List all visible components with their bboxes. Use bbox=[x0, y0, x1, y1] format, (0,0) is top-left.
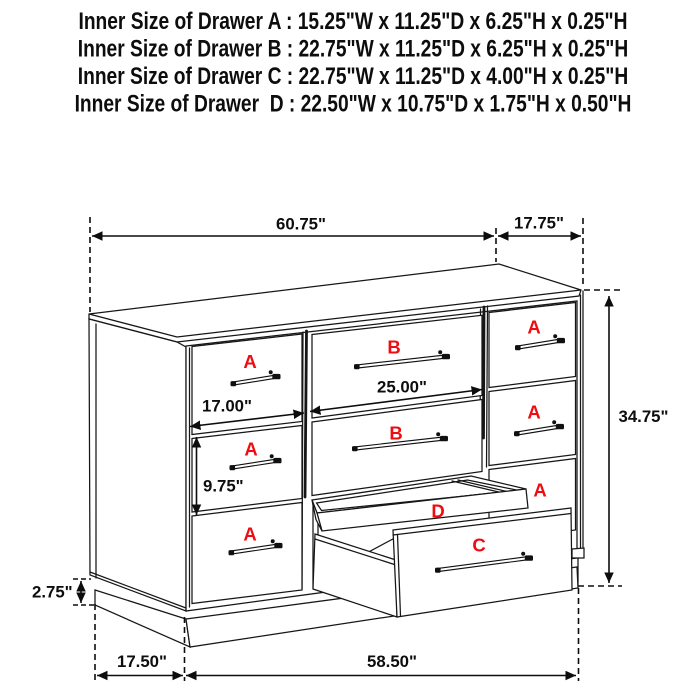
svg-text:A: A bbox=[527, 317, 540, 338]
svg-text:A: A bbox=[527, 402, 540, 423]
svg-text:58.50": 58.50" bbox=[367, 652, 417, 671]
svg-text:34.75": 34.75" bbox=[619, 407, 669, 426]
svg-text:25.00": 25.00" bbox=[377, 378, 427, 397]
svg-text:A: A bbox=[533, 480, 546, 501]
svg-text:17.75": 17.75" bbox=[514, 214, 564, 233]
svg-text:A: A bbox=[243, 524, 256, 545]
svg-text:9.75": 9.75" bbox=[203, 477, 244, 496]
svg-text:B: B bbox=[387, 337, 400, 358]
svg-text:D: D bbox=[431, 501, 444, 522]
svg-text:B: B bbox=[389, 423, 402, 444]
svg-text:2.75": 2.75" bbox=[32, 583, 73, 602]
svg-text:A: A bbox=[244, 439, 257, 460]
svg-text:17.50": 17.50" bbox=[117, 652, 167, 671]
svg-text:60.75": 60.75" bbox=[276, 215, 326, 234]
svg-text:C: C bbox=[472, 535, 485, 556]
svg-text:A: A bbox=[243, 351, 256, 372]
svg-text:17.00": 17.00" bbox=[202, 397, 252, 416]
